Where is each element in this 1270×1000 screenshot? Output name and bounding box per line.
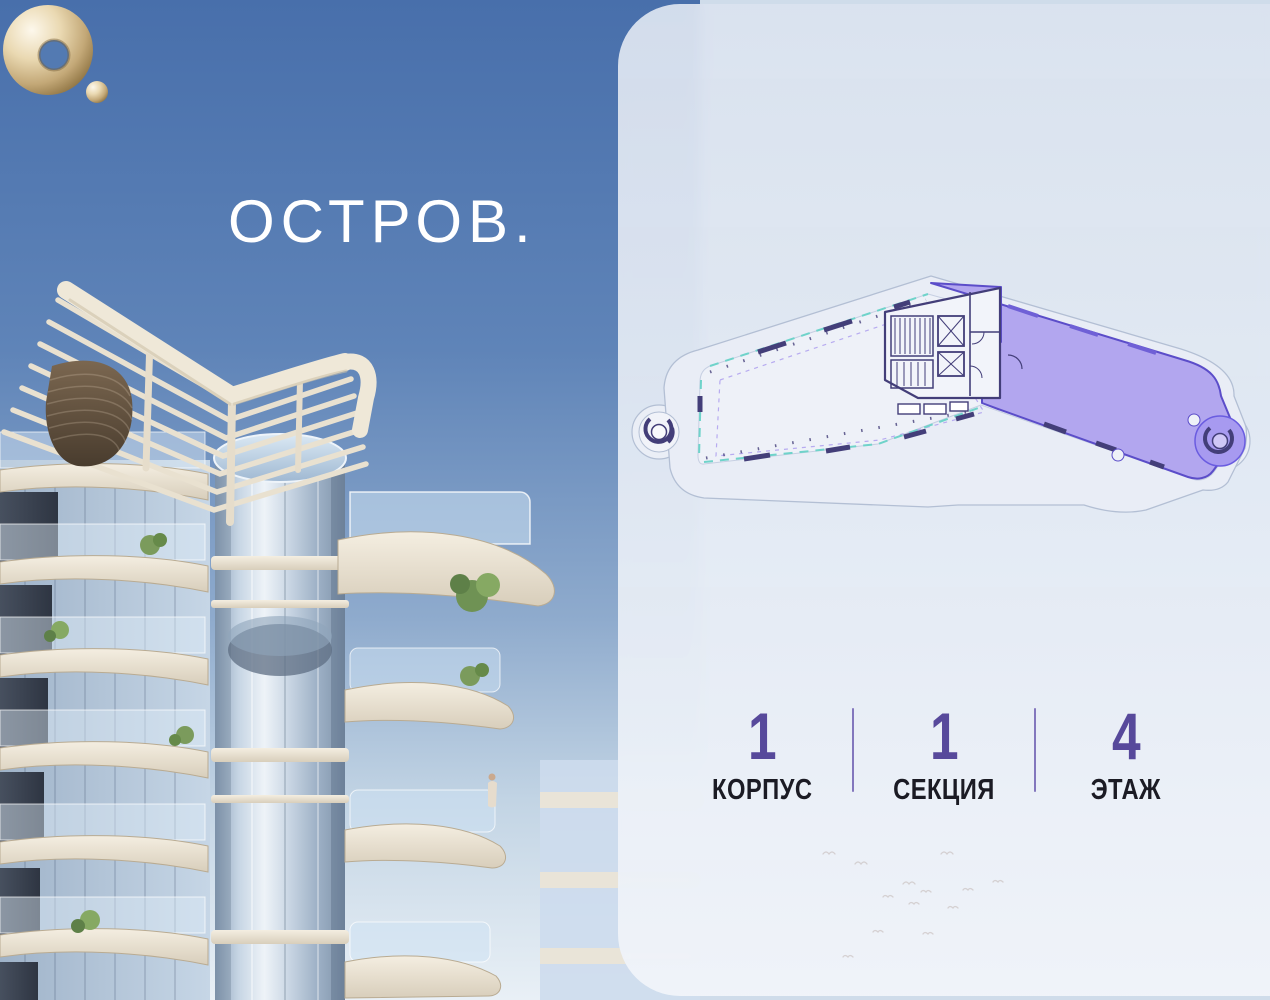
info-divider xyxy=(852,708,854,792)
torus-logo-icon xyxy=(0,0,112,112)
unit-notch xyxy=(1112,449,1124,461)
info-floor: 4 ЭТАЖ xyxy=(1046,702,1206,807)
info-section: 1 СЕКЦИЯ xyxy=(864,702,1024,807)
section-number: 1 xyxy=(930,702,959,771)
right-round-balcony xyxy=(1195,416,1245,466)
building-number: 1 xyxy=(748,702,777,771)
unit-notch xyxy=(1188,414,1200,426)
building-label: КОРПУС xyxy=(712,775,812,807)
left-round-balcony xyxy=(639,412,679,452)
floor-number: 4 xyxy=(1112,702,1141,771)
info-divider xyxy=(1034,708,1036,792)
building-photo: ОСТРОВ. xyxy=(0,0,700,1000)
unit-location-info: 1 КОРПУС 1 СЕКЦИЯ 4 ЭТАЖ xyxy=(618,702,1270,807)
birds-flock xyxy=(813,842,1053,972)
info-building: 1 КОРПУС xyxy=(682,702,842,807)
floor-label: ЭТАЖ xyxy=(1091,775,1161,807)
brand-wordmark: ОСТРОВ. xyxy=(228,192,537,252)
section-label: СЕКЦИЯ xyxy=(893,775,995,807)
brand-logo: ОСТРОВ. xyxy=(0,0,620,300)
unit-info-panel: 1 КОРПУС 1 СЕКЦИЯ 4 ЭТАЖ xyxy=(618,4,1270,996)
floor-plan[interactable] xyxy=(628,255,1268,525)
